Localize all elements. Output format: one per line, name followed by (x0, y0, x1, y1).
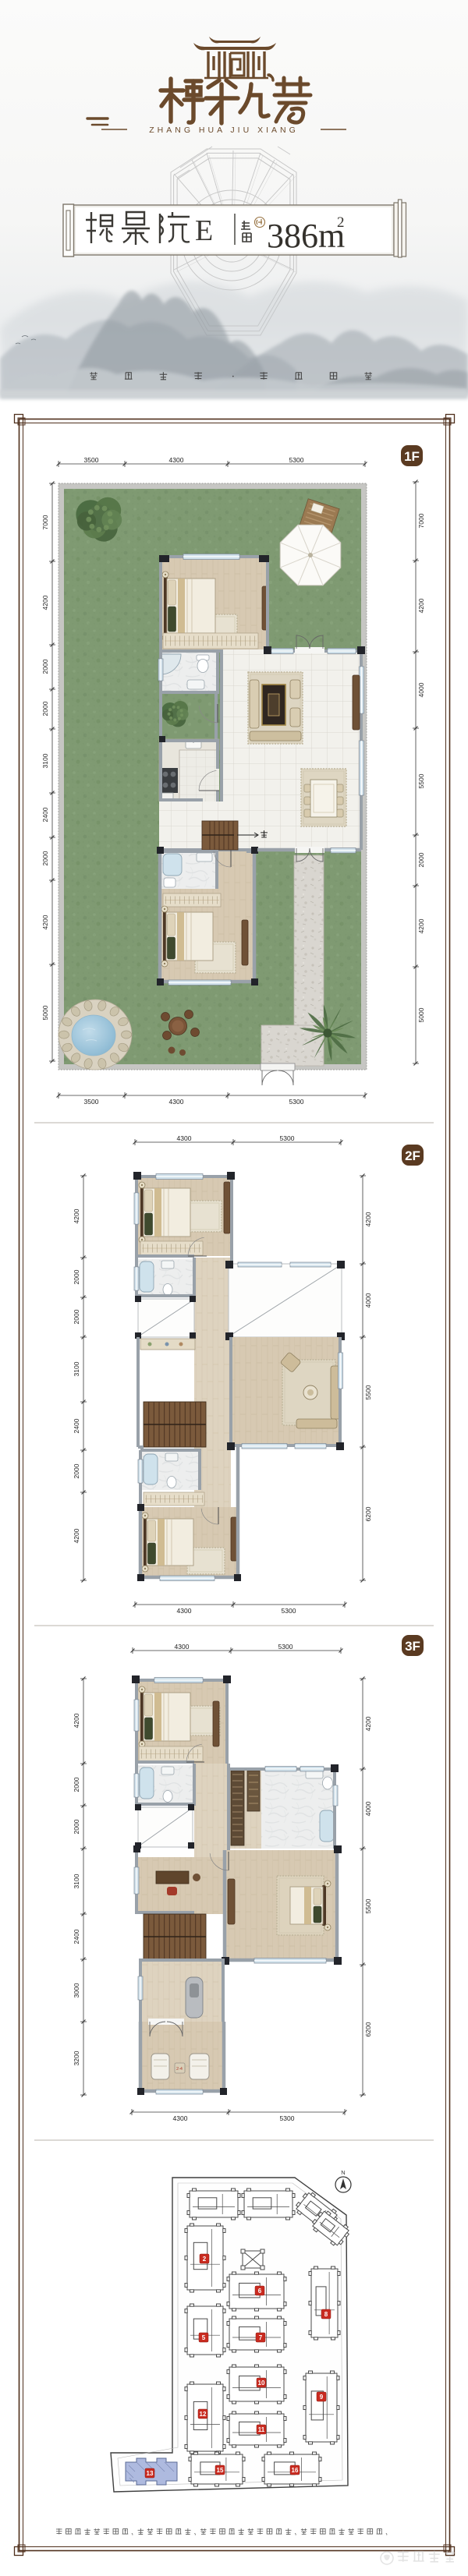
svg-text:4200: 4200 (417, 598, 425, 613)
svg-text:3500: 3500 (84, 456, 99, 464)
svg-text:13: 13 (147, 2470, 154, 2477)
svg-text:16: 16 (292, 2467, 299, 2474)
svg-text:2400: 2400 (73, 1418, 80, 1433)
svg-text:7000: 7000 (41, 515, 49, 529)
svg-text:7: 7 (259, 2334, 263, 2341)
svg-text:2000: 2000 (417, 852, 425, 867)
svg-text:4200: 4200 (364, 1716, 372, 1731)
svg-text:3200: 3200 (73, 2051, 80, 2065)
svg-text:4200: 4200 (41, 595, 49, 610)
svg-text:8: 8 (324, 2311, 328, 2318)
svg-text:4300: 4300 (177, 1134, 192, 1142)
svg-text:2-4: 2-4 (176, 2067, 183, 2072)
svg-text:6: 6 (258, 2288, 262, 2295)
svg-text:2F: 2F (405, 1148, 420, 1163)
svg-text:6200: 6200 (364, 1506, 372, 1521)
svg-text:5300: 5300 (280, 2114, 295, 2122)
svg-text:4200: 4200 (417, 918, 425, 933)
svg-text:4300: 4300 (173, 2114, 188, 2122)
svg-text:4000: 4000 (364, 1801, 372, 1816)
svg-text:5500: 5500 (364, 1385, 372, 1399)
svg-text:5300: 5300 (282, 1607, 296, 1615)
svg-text:4200: 4200 (73, 1528, 80, 1543)
svg-text:3100: 3100 (41, 753, 49, 768)
svg-text:3F: 3F (405, 1639, 420, 1654)
svg-text:4300: 4300 (175, 1643, 190, 1651)
svg-text:2000: 2000 (41, 659, 49, 674)
svg-text:5000: 5000 (41, 1005, 49, 1020)
svg-text:2000: 2000 (73, 1819, 80, 1834)
svg-text:12: 12 (200, 2411, 207, 2418)
svg-text:4000: 4000 (417, 682, 425, 697)
svg-text:2400: 2400 (41, 807, 49, 822)
svg-text:2000: 2000 (41, 851, 49, 865)
svg-text:6200: 6200 (364, 2022, 372, 2036)
svg-text:7000: 7000 (417, 513, 425, 528)
svg-text:3500: 3500 (84, 1098, 99, 1106)
svg-text:4200: 4200 (364, 1212, 372, 1226)
svg-text:5500: 5500 (417, 773, 425, 788)
svg-text:5000: 5000 (417, 1007, 425, 1022)
svg-text:3100: 3100 (73, 1361, 80, 1376)
svg-text:386m: 386m (267, 217, 345, 255)
svg-text:5500: 5500 (364, 1898, 372, 1913)
svg-text:4200: 4200 (73, 1208, 80, 1223)
svg-text:4000: 4000 (364, 1293, 372, 1307)
svg-text:1F: 1F (404, 449, 420, 464)
svg-text:2000: 2000 (73, 1309, 80, 1324)
svg-text:10: 10 (258, 2380, 265, 2387)
svg-text:2: 2 (337, 214, 345, 231)
svg-text:2: 2 (203, 2256, 207, 2263)
svg-text:2000: 2000 (73, 1777, 80, 1792)
svg-text:4300: 4300 (169, 1098, 184, 1106)
svg-text:15: 15 (217, 2467, 224, 2474)
svg-text:9: 9 (320, 2394, 324, 2401)
svg-text:ZHANG HUA JIU XIANG: ZHANG HUA JIU XIANG (149, 126, 299, 135)
svg-text:2000: 2000 (73, 1269, 80, 1284)
svg-text:3100: 3100 (73, 1874, 80, 1888)
svg-text:2400: 2400 (73, 1929, 80, 1944)
svg-text:4200: 4200 (73, 1713, 80, 1728)
svg-text:5300: 5300 (289, 1098, 304, 1106)
svg-text:N: N (341, 2169, 345, 2176)
svg-text:5300: 5300 (289, 456, 304, 464)
svg-text:11: 11 (258, 2426, 265, 2433)
svg-text:4300: 4300 (177, 1607, 192, 1615)
svg-text:2000: 2000 (73, 1463, 80, 1478)
svg-text:2000: 2000 (41, 701, 49, 716)
svg-text:4200: 4200 (41, 915, 49, 929)
svg-text:5300: 5300 (278, 1643, 293, 1651)
svg-text:4300: 4300 (169, 456, 184, 464)
svg-text:E: E (195, 214, 213, 247)
svg-text:5: 5 (202, 2334, 206, 2341)
svg-text:5300: 5300 (280, 1134, 295, 1142)
svg-text:3000: 3000 (73, 1983, 80, 1997)
